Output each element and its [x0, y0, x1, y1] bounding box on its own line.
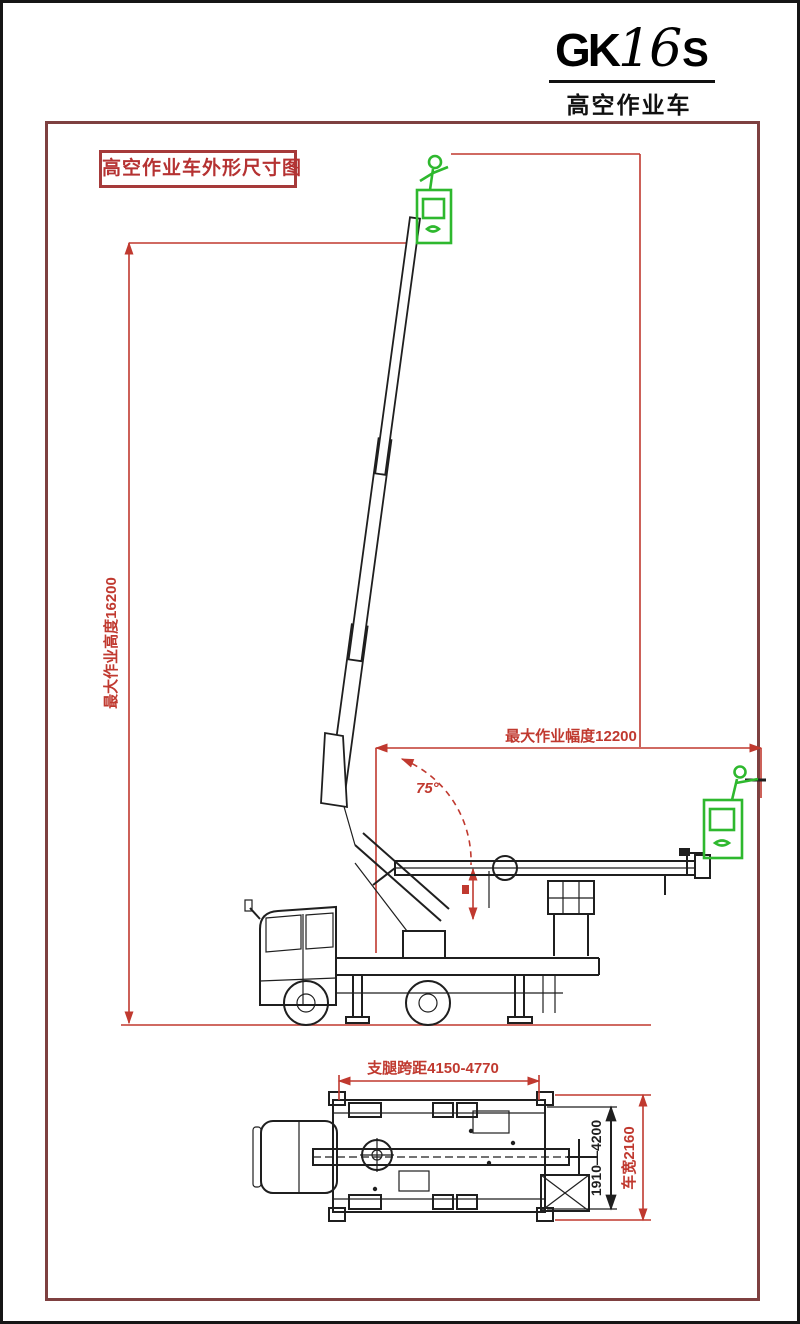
boom-angle-dimension: 75° — [402, 759, 471, 865]
wheels-plan — [349, 1103, 477, 1209]
right-basket-mount — [665, 780, 766, 895]
rear-outrigger — [508, 975, 555, 1023]
top-work-basket — [417, 190, 451, 243]
turret-height-dimension — [462, 869, 473, 919]
truck-chassis — [336, 958, 599, 993]
height-dimension-label: 最大作业高度16200 — [102, 577, 120, 709]
boom-plan — [313, 1139, 597, 1175]
drawing-sheet: GK16S 高空作业车 高空作业车外形尺寸图 最大作业高度16200 — [0, 0, 800, 1324]
front-wheel — [284, 981, 328, 1025]
vehicle-width-label: 车宽2160 — [620, 1126, 638, 1189]
main-telescopic-boom — [321, 217, 420, 807]
right-operator-figure — [732, 767, 758, 801]
truck-plan-view — [253, 1092, 597, 1221]
technical-drawing: 最大作业高度16200 最大作业幅度12200 75° — [3, 3, 800, 1324]
rear-wheel — [406, 981, 450, 1025]
deck-equipment-box — [548, 881, 594, 956]
outrigger-lateral-label: 1910—4200 — [588, 1120, 604, 1197]
radius-dimension-label: 最大作业幅度12200 — [505, 727, 637, 745]
top-operator-figure — [420, 156, 448, 190]
turret-assembly — [343, 803, 489, 958]
outrigger-span-label: 支腿跨距4150-4770 — [366, 1059, 499, 1077]
boom-angle-label: 75° — [416, 780, 440, 797]
right-work-basket — [704, 800, 742, 858]
turret-ring-plan — [360, 1138, 394, 1172]
horizontal-jib-boom — [373, 855, 710, 885]
truck-side-view — [245, 217, 766, 1025]
outrigger-span-dimension: 支腿跨距4150-4770 — [339, 1059, 539, 1100]
basket-plan — [541, 1175, 589, 1211]
cab-plan — [253, 1121, 337, 1193]
plan-detail-marks — [373, 1111, 515, 1191]
front-outrigger — [346, 975, 369, 1023]
reach-envelope-lines — [451, 154, 640, 747]
